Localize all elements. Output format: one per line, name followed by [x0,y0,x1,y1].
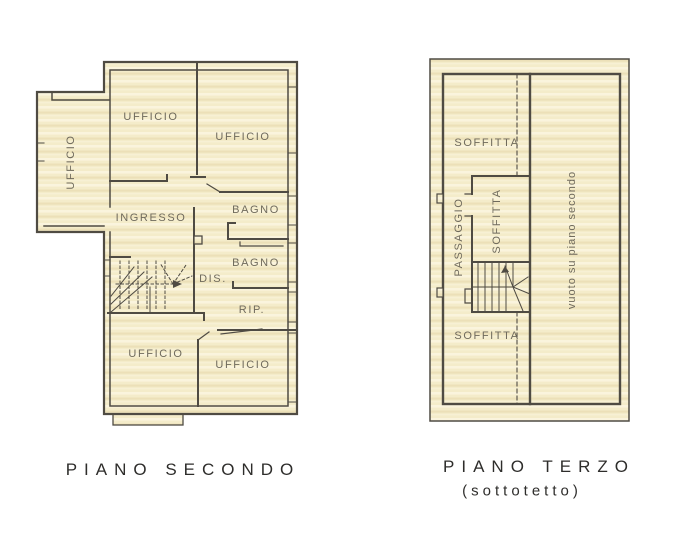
room-label-ufficio-top-right: UFFICIO [215,131,270,143]
caption-sottotetto: (sottotetto) [462,483,582,500]
room-label-soffitta-top: SOFFITTA [454,137,519,149]
room-label-ufficio-top-center: UFFICIO [123,111,178,123]
room-label-ufficio-bottom-right: UFFICIO [215,359,270,371]
room-label-bagno-lower: BAGNO [232,257,280,269]
room-label-ingresso: INGRESSO [116,212,187,224]
room-label-ufficio-wing: UFFICIO [65,134,77,189]
room-label-soffitta-bottom: SOFFITTA [454,330,519,342]
room-label-rip: RIP. [239,304,265,316]
right-plan-wall-notch-upper [437,194,443,203]
right-plan-wall-notch-lower [437,288,443,297]
room-label-soffitta-middle: SOFFITTA [491,188,503,253]
left-plan-wall-pier [194,236,202,244]
floor-plan-sheet: UFFICIO UFFICIO UFFICIO INGRESSO BAGNO B… [0,0,696,556]
left-plan-terrace [113,414,183,425]
room-label-dis: DIS. [199,273,227,285]
room-label-ufficio-bottom-left: UFFICIO [128,348,183,360]
caption-piano-secondo: PIANO SECONDO [66,460,301,480]
room-label-bagno-upper: BAGNO [232,204,280,216]
room-label-passaggio: PASSAGGIO [453,198,465,277]
caption-piano-terzo: PIANO TERZO [443,457,635,477]
room-label-vuoto-su-piano-secondo: vuoto su piano secondo [566,171,578,309]
